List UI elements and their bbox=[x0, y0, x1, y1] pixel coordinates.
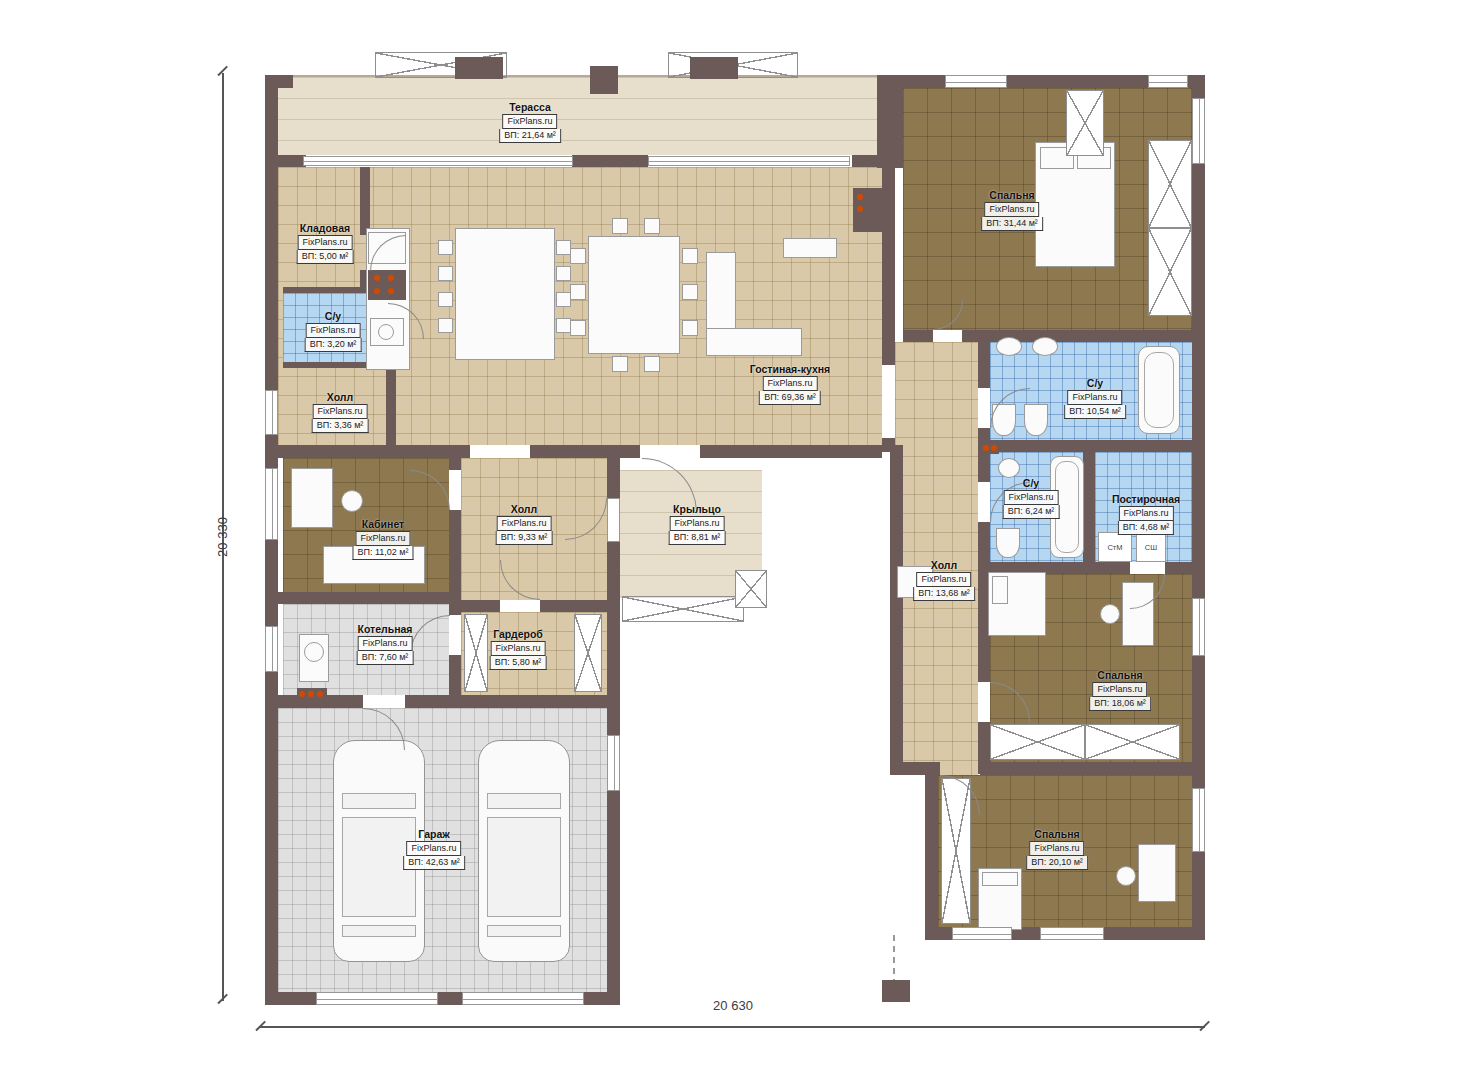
room-name: Крыльцо bbox=[673, 503, 721, 515]
room-area: ВП: 21,64 м² bbox=[499, 129, 561, 143]
sofa bbox=[706, 328, 802, 356]
stool bbox=[438, 292, 453, 307]
pillow bbox=[992, 576, 1008, 604]
stool bbox=[556, 292, 571, 307]
window bbox=[265, 626, 278, 672]
stove-burner bbox=[374, 275, 380, 281]
room-label-bedroom-2: Спальня FixPlans.ru ВП: 18,06 м² bbox=[1089, 669, 1151, 711]
room-area: ВП: 9,33 м² bbox=[496, 531, 553, 545]
room-watermark: FixPlans.ru bbox=[1003, 490, 1058, 505]
stove-burner bbox=[388, 275, 394, 281]
entry-door-gap bbox=[607, 498, 620, 542]
sink bbox=[996, 337, 1022, 356]
room-watermark: FixPlans.ru bbox=[669, 516, 724, 531]
room-area: ВП: 20,10 м² bbox=[1026, 856, 1088, 870]
room-label-storage: Кладовая FixPlans.ru ВП: 5,00 м² bbox=[297, 222, 354, 264]
chair bbox=[682, 284, 698, 300]
porch-column-hatch bbox=[735, 570, 767, 608]
room-name: Холл bbox=[931, 559, 957, 571]
wall-segment bbox=[978, 428, 990, 482]
room-label-hall-1: Холл FixPlans.ru ВП: 3,36 м² bbox=[312, 391, 369, 433]
room-watermark: FixPlans.ru bbox=[762, 376, 817, 391]
wall-segment bbox=[360, 167, 370, 235]
room-label-bathroom-1: С/у FixPlans.ru ВП: 3,20 м² bbox=[305, 310, 362, 352]
room-name: Кладовая bbox=[300, 222, 350, 234]
floor-plan: СтМ СШ bbox=[0, 0, 1474, 1080]
wardrobe-hatch bbox=[1148, 228, 1192, 316]
room-label-boiler: Котельная FixPlans.ru ВП: 7,60 м² bbox=[357, 623, 414, 665]
wall-segment bbox=[449, 452, 461, 470]
room-area: ВП: 3,20 м² bbox=[305, 338, 362, 352]
washing-machine: СтМ bbox=[1098, 532, 1132, 562]
canopy-pillar bbox=[690, 57, 738, 79]
room-watermark: FixPlans.ru bbox=[984, 202, 1039, 217]
wall-pillar bbox=[590, 66, 618, 94]
wardrobe-hatch bbox=[990, 724, 1085, 760]
window bbox=[945, 75, 1007, 88]
wall-segment bbox=[278, 592, 455, 604]
radiator-dot bbox=[991, 445, 997, 451]
room-name: Терасса bbox=[509, 101, 551, 113]
toilet bbox=[996, 528, 1020, 558]
dining-table bbox=[588, 236, 680, 354]
room-watermark: FixPlans.ru bbox=[1092, 682, 1147, 697]
room-name: Холл bbox=[511, 503, 537, 515]
wall-segment bbox=[1165, 562, 1205, 574]
wall-segment bbox=[278, 155, 306, 167]
room-name: Спальня bbox=[989, 189, 1034, 201]
stool bbox=[438, 318, 453, 333]
room-label-wardrobe: Гардероб FixPlans.ru ВП: 5,80 м² bbox=[490, 628, 547, 670]
dimension-line-horizontal bbox=[260, 1026, 1205, 1028]
chair bbox=[644, 356, 660, 372]
wall-segment bbox=[278, 445, 470, 458]
room-watermark: FixPlans.ru bbox=[1029, 841, 1084, 856]
kitchen-island bbox=[455, 228, 555, 360]
wall-segment bbox=[980, 762, 1205, 775]
room-name: Холл bbox=[327, 391, 353, 403]
stool bbox=[556, 266, 571, 281]
room-watermark: FixPlans.ru bbox=[312, 404, 367, 419]
room-label-bathroom-2: С/у FixPlans.ru ВП: 10,54 м² bbox=[1064, 377, 1126, 419]
room-area: ВП: 7,60 м² bbox=[357, 651, 414, 665]
radiator-dot bbox=[857, 194, 863, 200]
room-name: Гардероб bbox=[493, 628, 543, 640]
room-name: С/у bbox=[1023, 477, 1039, 489]
room-label-bathroom-3: С/у FixPlans.ru ВП: 6,24 м² bbox=[1003, 477, 1060, 519]
wall-segment bbox=[386, 368, 396, 445]
chair bbox=[644, 218, 660, 234]
room-name: С/у bbox=[325, 310, 341, 322]
window bbox=[1192, 788, 1205, 852]
radiator-dot bbox=[857, 206, 863, 212]
sink bbox=[1032, 337, 1058, 356]
wall-segment bbox=[890, 445, 903, 775]
wardrobe-hatch bbox=[1085, 724, 1180, 760]
room-watermark: FixPlans.ru bbox=[502, 114, 557, 129]
wall-segment bbox=[572, 155, 648, 167]
bathtub bbox=[1138, 346, 1180, 434]
room-name: Гостиная-кухня bbox=[750, 363, 830, 375]
room-label-porch: Крыльцо FixPlans.ru ВП: 8,81 м² bbox=[669, 503, 726, 545]
window bbox=[1148, 75, 1188, 88]
chair bbox=[570, 284, 586, 300]
wall-segment bbox=[530, 445, 640, 458]
wardrobe-hatch bbox=[1148, 140, 1192, 228]
chair bbox=[612, 218, 628, 234]
room-label-laundry: Постирочная FixPlans.ru ВП: 4,68 м² bbox=[1112, 493, 1180, 535]
room-area: ВП: 31,44 м² bbox=[981, 217, 1043, 231]
wall-segment bbox=[962, 330, 978, 342]
room-name: Котельная bbox=[358, 623, 413, 635]
car bbox=[478, 740, 570, 962]
wardrobe-hatch bbox=[464, 614, 488, 692]
window bbox=[265, 468, 278, 540]
stool bbox=[438, 266, 453, 281]
room-name: Кабинет bbox=[362, 518, 405, 530]
dashed-line bbox=[893, 935, 895, 985]
room-area: ВП: 42,63 м² bbox=[403, 856, 465, 870]
room-watermark: FixPlans.ru bbox=[490, 641, 545, 656]
wall-pillar bbox=[882, 980, 910, 1002]
stove bbox=[368, 270, 406, 300]
room-area: ВП: 5,80 м² bbox=[490, 656, 547, 670]
room-watermark: FixPlans.ru bbox=[916, 572, 971, 587]
sideboard bbox=[783, 238, 837, 258]
room-label-living-kitchen: Гостиная-кухня FixPlans.ru ВП: 69,36 м² bbox=[750, 363, 830, 405]
room-area: ВП: 3,36 м² bbox=[312, 419, 369, 433]
wall-segment bbox=[852, 155, 895, 167]
room-watermark: FixPlans.ru bbox=[305, 323, 360, 338]
room-area: ВП: 8,81 м² bbox=[669, 531, 726, 545]
stool bbox=[556, 240, 571, 255]
stove-burner bbox=[374, 288, 380, 294]
room-area: ВП: 5,00 м² bbox=[297, 250, 354, 264]
room-label-bedroom-3: Спальня FixPlans.ru ВП: 20,10 м² bbox=[1026, 828, 1088, 870]
wall-segment bbox=[978, 342, 990, 388]
washing-machine-label: СтМ bbox=[1107, 543, 1122, 552]
chair bbox=[1116, 866, 1136, 886]
room-name: Спальня bbox=[1034, 828, 1079, 840]
pillow bbox=[982, 872, 1018, 886]
room-label-office: Кабинет FixPlans.ru ВП: 11,02 м² bbox=[352, 518, 413, 560]
radiator-dot bbox=[983, 445, 989, 451]
garage-door bbox=[316, 992, 438, 1005]
chair bbox=[570, 320, 586, 336]
stool bbox=[438, 240, 453, 255]
chair bbox=[570, 248, 586, 264]
room-name: Спальня bbox=[1097, 669, 1142, 681]
wardrobe-hatch bbox=[574, 614, 602, 692]
room-watermark: FixPlans.ru bbox=[496, 516, 551, 531]
wall-segment bbox=[405, 695, 620, 708]
chair bbox=[682, 320, 698, 336]
desk bbox=[1138, 844, 1176, 902]
radiator-dot bbox=[308, 691, 314, 697]
room-area: ВП: 4,68 м² bbox=[1118, 521, 1175, 535]
room-area: ВП: 18,06 м² bbox=[1089, 697, 1151, 711]
window bbox=[607, 735, 620, 791]
window bbox=[1192, 598, 1205, 656]
room-area: ВП: 6,24 м² bbox=[1003, 505, 1060, 519]
room-label-garage: Гараж FixPlans.ru ВП: 42,63 м² bbox=[403, 828, 465, 870]
room-name: Постирочная bbox=[1112, 493, 1180, 505]
glass-door bbox=[648, 156, 850, 166]
wall-segment bbox=[540, 600, 620, 612]
window bbox=[1192, 98, 1205, 164]
wall-segment bbox=[265, 75, 293, 88]
floor-terrace bbox=[278, 77, 878, 155]
dimension-label-bottom: 20 630 bbox=[713, 998, 753, 1013]
window bbox=[952, 927, 1012, 940]
dimension-label-left: 20 330 bbox=[215, 517, 230, 557]
chair bbox=[612, 356, 628, 372]
room-watermark: FixPlans.ru bbox=[1118, 506, 1173, 521]
wall-segment bbox=[265, 75, 278, 1005]
wall-segment bbox=[449, 655, 461, 700]
room-area: ВП: 69,36 м² bbox=[759, 391, 821, 405]
wall-segment bbox=[1083, 446, 1095, 574]
window bbox=[1040, 927, 1104, 940]
room-watermark: FixPlans.ru bbox=[355, 531, 410, 546]
radiator-dot bbox=[317, 691, 323, 697]
room-area: ВП: 10,54 м² bbox=[1064, 405, 1126, 419]
room-label-hall-2: Холл FixPlans.ru ВП: 13,68 м² bbox=[913, 559, 975, 601]
garage-door bbox=[462, 992, 584, 1005]
stove-burner bbox=[388, 288, 394, 294]
chair bbox=[1100, 604, 1120, 624]
porch-steps bbox=[622, 596, 744, 622]
chair bbox=[341, 490, 363, 512]
desk bbox=[291, 468, 333, 528]
room-watermark: FixPlans.ru bbox=[297, 235, 352, 250]
drying-machine-label: СШ bbox=[1145, 543, 1157, 552]
chair bbox=[682, 248, 698, 264]
wall-segment bbox=[700, 445, 882, 458]
room-area: ВП: 11,02 м² bbox=[352, 546, 413, 560]
wall-segment bbox=[903, 330, 933, 342]
room-watermark: FixPlans.ru bbox=[357, 636, 412, 651]
sink bbox=[998, 458, 1020, 478]
room-name: С/у bbox=[1087, 377, 1103, 389]
room-area: ВП: 13,68 м² bbox=[913, 587, 975, 601]
room-watermark: FixPlans.ru bbox=[1067, 390, 1122, 405]
wall-segment bbox=[925, 762, 938, 940]
stool bbox=[556, 318, 571, 333]
drying-machine: СШ bbox=[1136, 532, 1166, 562]
wardrobe-hatch bbox=[1066, 90, 1104, 156]
room-name: Гараж bbox=[418, 828, 449, 840]
window bbox=[265, 390, 278, 435]
boiler-dial bbox=[304, 642, 324, 662]
canopy-pillar bbox=[455, 57, 503, 79]
room-watermark: FixPlans.ru bbox=[406, 841, 461, 856]
radiator-dot bbox=[299, 691, 305, 697]
wall-segment bbox=[455, 600, 500, 612]
room-label-terrace: Терасса FixPlans.ru ВП: 21,64 м² bbox=[499, 101, 561, 143]
room-label-hall-3: Холл FixPlans.ru ВП: 9,33 м² bbox=[496, 503, 553, 545]
glass-door bbox=[303, 156, 573, 166]
room-label-bedroom-1: Спальня FixPlans.ru ВП: 31,44 м² bbox=[981, 189, 1043, 231]
